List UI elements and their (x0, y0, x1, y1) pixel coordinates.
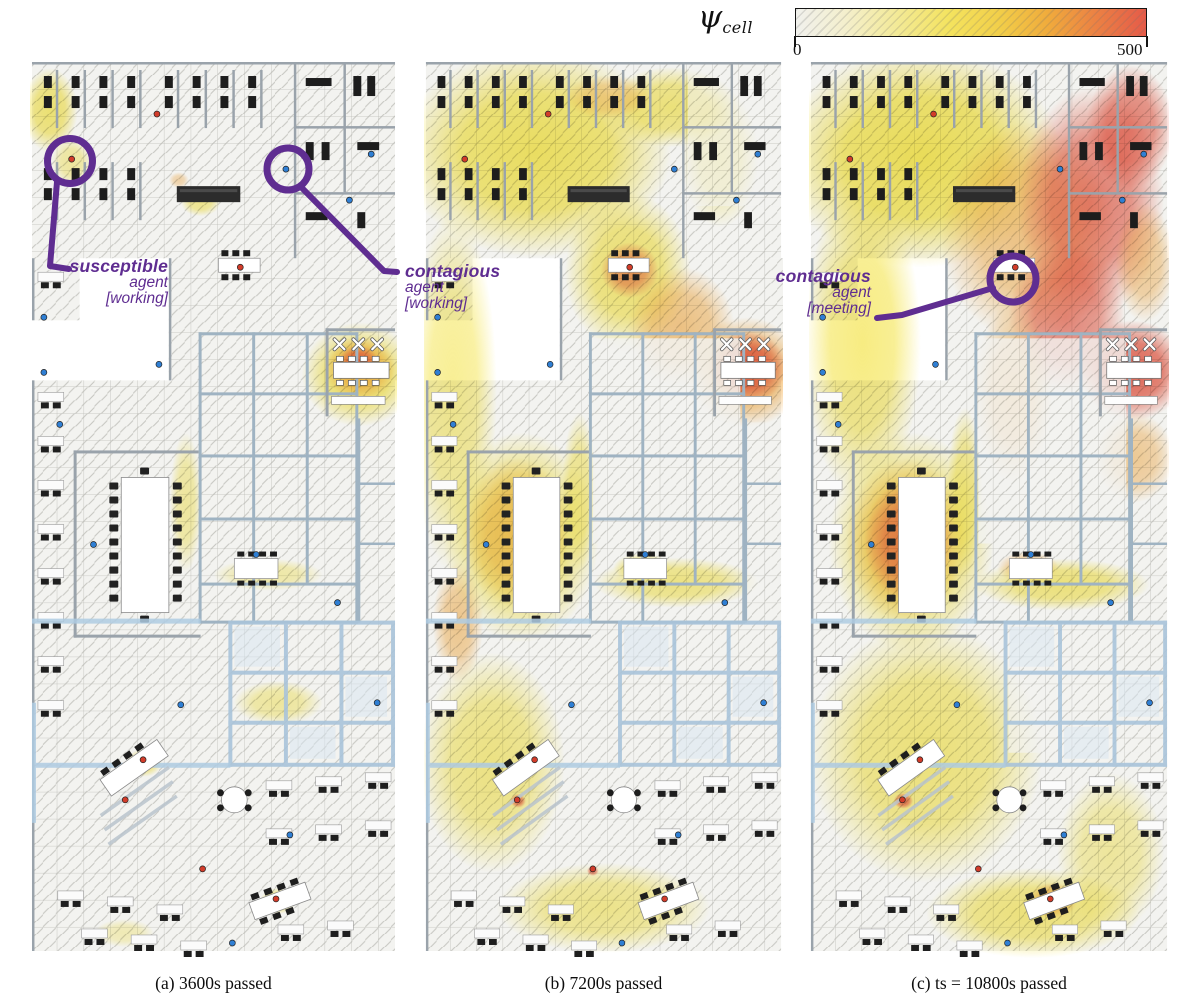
colorbar-hatch-texture (796, 9, 1146, 36)
colorbar-tick-max (1146, 36, 1148, 47)
caption-panel-b: (b) 7200s passed (424, 973, 783, 994)
panel-c-floorplan (809, 62, 1169, 963)
cold-room-overlay (593, 338, 740, 543)
caption-panel-c: (c) ts = 10800s passed (809, 973, 1169, 994)
cold-room-overlay (746, 422, 779, 602)
colorbar-bar (795, 8, 1147, 37)
heat-blob (1057, 773, 1164, 933)
psi-symbol: ψ (698, 0, 722, 35)
panel-a-floorplan (30, 62, 397, 963)
panel-b-svg (424, 62, 783, 963)
caption-panel-a: (a) 3600s passed (30, 973, 397, 994)
panel-c-svg (809, 62, 1169, 963)
psi-subscript: cell (722, 18, 753, 37)
cold-room-overlay (688, 66, 779, 206)
heat-blob (169, 172, 189, 188)
colorbar: ψcell 0 500 (698, 2, 1158, 58)
figure-root: ψcell 0 500 (0, 0, 1185, 1008)
panel-a-svg (30, 62, 397, 963)
heat-blob (233, 681, 322, 725)
panel-b-floorplan (424, 62, 783, 963)
colorbar-min-label: 0 (793, 40, 802, 60)
cold-room-overlay (978, 338, 1126, 543)
colorbar-max-label: 500 (1117, 40, 1143, 60)
colorbar-title: ψcell (698, 2, 753, 37)
